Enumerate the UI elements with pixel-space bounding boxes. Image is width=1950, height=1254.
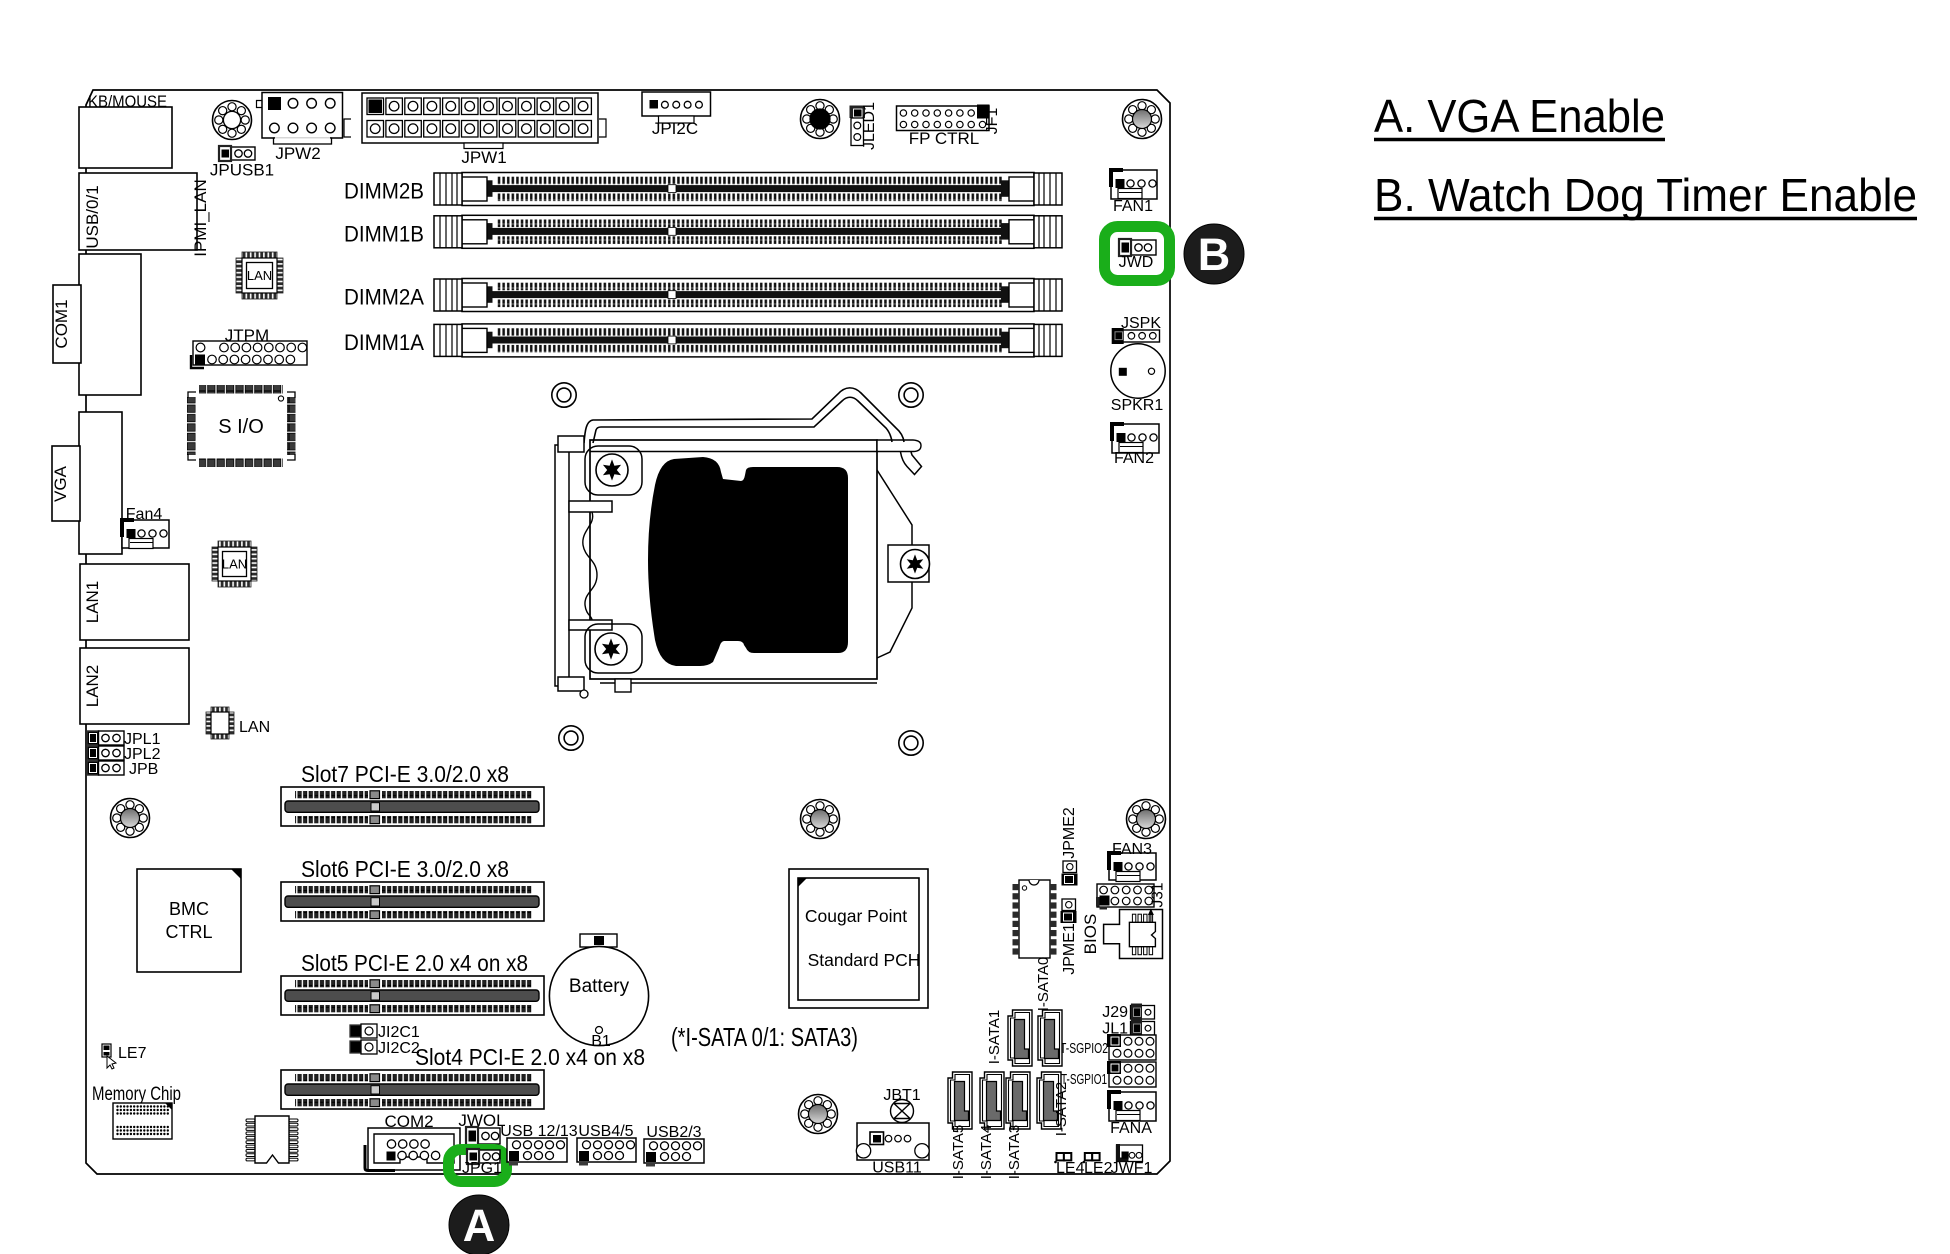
svg-text:JWD: JWD — [1119, 254, 1154, 271]
svg-text:I-SATA1: I-SATA1 — [986, 1010, 1003, 1064]
svg-text:JI2C2: JI2C2 — [378, 1040, 420, 1057]
svg-text:I-SATA0: I-SATA0 — [1035, 957, 1052, 1011]
svg-text:LAN: LAN — [239, 719, 270, 736]
svg-text:J29: J29 — [1102, 1004, 1128, 1021]
svg-text:FAN1: FAN1 — [1113, 198, 1153, 215]
svg-text:USB/0/1: USB/0/1 — [83, 185, 102, 248]
svg-text:BMC: BMC — [169, 899, 209, 919]
svg-text:USB11: USB11 — [872, 1160, 922, 1177]
svg-text:DIMM1A: DIMM1A — [344, 330, 424, 355]
svg-text:VGA: VGA — [51, 465, 70, 502]
svg-text:Slot5 PCI-E 2.0 x4 on x8: Slot5 PCI-E 2.0 x4 on x8 — [301, 950, 528, 976]
svg-text:FAN2: FAN2 — [1114, 450, 1154, 467]
svg-text:I-SATA2: I-SATA2 — [1053, 1082, 1070, 1136]
svg-text:S I/O: S I/O — [218, 416, 264, 438]
svg-text:LE4: LE4 — [1056, 1160, 1085, 1177]
svg-text:COM2: COM2 — [384, 1112, 433, 1131]
svg-text:JPI2C: JPI2C — [652, 119, 698, 138]
svg-text:Standard PCH: Standard PCH — [808, 950, 921, 970]
svg-text:I-SATA4: I-SATA4 — [978, 1125, 995, 1179]
svg-text:Memory Chip: Memory Chip — [92, 1084, 181, 1105]
svg-text:T-SGPIO2: T-SGPIO2 — [1060, 1041, 1108, 1057]
svg-text:JPW1: JPW1 — [461, 148, 506, 167]
svg-text:LAN2: LAN2 — [83, 665, 102, 708]
svg-text:Fan4: Fan4 — [126, 506, 163, 523]
svg-text:Battery: Battery — [569, 976, 630, 997]
svg-text:B: B — [1198, 229, 1231, 280]
svg-text:LAN: LAN — [222, 557, 247, 572]
svg-text:J31: J31 — [1150, 883, 1167, 908]
svg-text:I-SATA3: I-SATA3 — [1006, 1125, 1023, 1179]
svg-text:JPW2: JPW2 — [275, 144, 320, 163]
svg-text:FANA: FANA — [1110, 1120, 1152, 1137]
svg-text:A. VGA Enable: A. VGA Enable — [1374, 90, 1665, 142]
svg-text:FAN3: FAN3 — [1112, 841, 1152, 858]
svg-text:LAN: LAN — [247, 268, 272, 283]
svg-text:JPB: JPB — [129, 761, 158, 778]
svg-text:JTPM: JTPM — [225, 326, 269, 345]
svg-text:JLED1: JLED1 — [861, 102, 878, 150]
svg-text:USB4/5: USB4/5 — [578, 1123, 633, 1140]
svg-text:DIMM2B: DIMM2B — [344, 179, 424, 204]
svg-text:JSPK: JSPK — [1121, 315, 1161, 332]
svg-text:CTRL: CTRL — [165, 922, 212, 942]
svg-text:KB/MOUSE: KB/MOUSE — [88, 92, 167, 111]
svg-text:JPUSB1: JPUSB1 — [210, 161, 274, 180]
svg-text:JBT1: JBT1 — [883, 1087, 920, 1104]
svg-text:JPG1: JPG1 — [462, 1160, 502, 1177]
svg-text:JPME1: JPME1 — [1061, 923, 1078, 975]
svg-text:DIMM1B: DIMM1B — [344, 221, 424, 246]
svg-text:Slot6 PCI-E 3.0/2.0 x8: Slot6 PCI-E 3.0/2.0 x8 — [301, 856, 509, 882]
svg-text:COM1: COM1 — [52, 299, 71, 348]
svg-text:USB 12/13: USB 12/13 — [500, 1123, 577, 1140]
svg-text:JWF1: JWF1 — [1111, 1160, 1153, 1177]
svg-text:Cougar Point: Cougar Point — [805, 906, 907, 926]
svg-text:JF1: JF1 — [984, 108, 1001, 135]
svg-text:BIOS: BIOS — [1081, 914, 1100, 955]
svg-text:B1: B1 — [591, 1033, 611, 1050]
svg-text:B. Watch Dog Timer Enable: B. Watch Dog Timer Enable — [1374, 169, 1917, 221]
svg-text:JI2C1: JI2C1 — [378, 1024, 420, 1041]
svg-text:(*I-SATA 0/1: SATA3): (*I-SATA 0/1: SATA3) — [671, 1022, 858, 1052]
svg-text:JPME2: JPME2 — [1061, 807, 1078, 859]
svg-text:DIMM2A: DIMM2A — [344, 285, 424, 310]
svg-text:FP CTRL: FP CTRL — [909, 129, 980, 148]
svg-text:LE2: LE2 — [1084, 1160, 1113, 1177]
svg-text:A: A — [463, 1200, 496, 1251]
svg-text:I-SATA5: I-SATA5 — [950, 1125, 967, 1179]
svg-text:Slot7 PCI-E 3.0/2.0 x8: Slot7 PCI-E 3.0/2.0 x8 — [301, 761, 509, 787]
svg-text:LE7: LE7 — [118, 1045, 147, 1062]
svg-text:SPKR1: SPKR1 — [1111, 397, 1164, 414]
svg-text:JWOL: JWOL — [458, 1111, 505, 1130]
svg-text:IPMI_LAN: IPMI_LAN — [191, 179, 210, 256]
svg-text:LAN1: LAN1 — [83, 581, 102, 624]
svg-text:USB2/3: USB2/3 — [646, 1124, 701, 1141]
